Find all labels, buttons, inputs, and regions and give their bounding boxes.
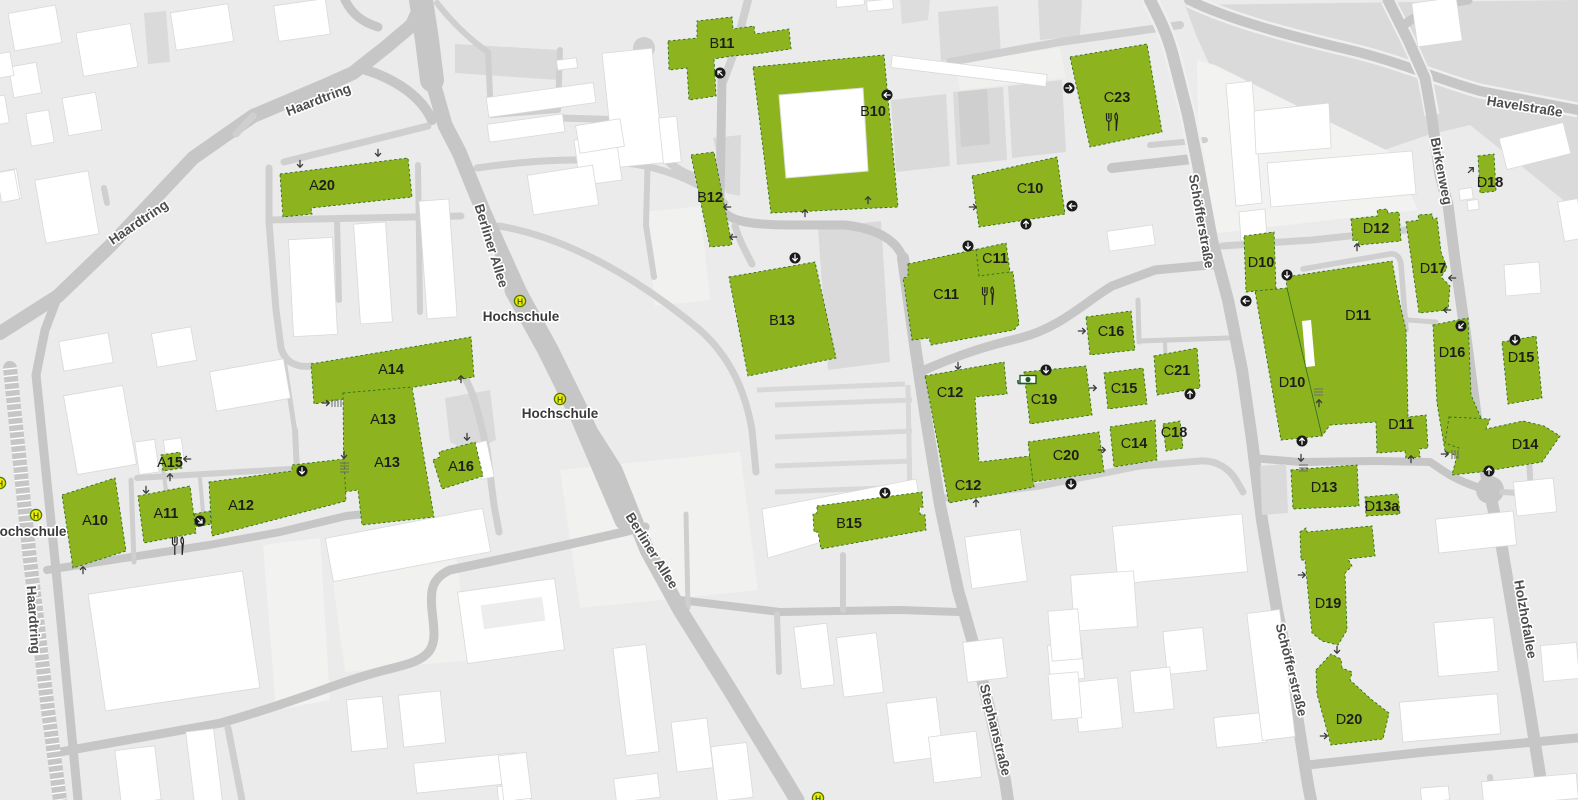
- svg-text:D12: D12: [1363, 221, 1390, 237]
- svg-text:C11: C11: [933, 287, 959, 303]
- svg-text:D17: D17: [1420, 261, 1447, 277]
- svg-text:C20: C20: [1053, 448, 1080, 464]
- svg-text:A11: A11: [153, 506, 178, 522]
- svg-text:A15: A15: [157, 455, 183, 471]
- svg-text:D11: D11: [1345, 308, 1371, 324]
- svg-text:Hochschule: Hochschule: [522, 406, 599, 421]
- svg-text:D20: D20: [1336, 712, 1363, 728]
- svg-text:B13: B13: [769, 313, 795, 329]
- svg-text:C16: C16: [1098, 324, 1125, 340]
- svg-text:Hochschule: Hochschule: [483, 309, 560, 324]
- svg-text:D18: D18: [1477, 175, 1504, 191]
- svg-text:A16: A16: [448, 459, 474, 475]
- svg-text:B10: B10: [860, 104, 886, 120]
- svg-text:D16: D16: [1439, 345, 1466, 361]
- svg-text:D19: D19: [1315, 596, 1342, 612]
- svg-text:D11: D11: [1388, 417, 1414, 433]
- svg-text:C19: C19: [1031, 392, 1058, 408]
- svg-text:C14: C14: [1121, 436, 1148, 452]
- svg-text:C11: C11: [982, 251, 1008, 267]
- svg-text:C12: C12: [937, 385, 964, 401]
- svg-text:C10: C10: [1017, 181, 1044, 197]
- svg-text:D10: D10: [1279, 375, 1306, 391]
- svg-text:C15: C15: [1111, 381, 1138, 397]
- svg-text:A20: A20: [309, 178, 335, 194]
- svg-text:A13: A13: [370, 412, 396, 428]
- svg-text:A12: A12: [228, 498, 254, 514]
- svg-text:C18: C18: [1161, 425, 1188, 441]
- svg-text:D10: D10: [1248, 255, 1275, 271]
- svg-text:D15: D15: [1508, 350, 1535, 366]
- svg-text:B12: B12: [697, 190, 723, 206]
- svg-text:D13a: D13a: [1365, 499, 1401, 515]
- svg-text:A10: A10: [82, 513, 108, 529]
- svg-text:B11: B11: [709, 36, 734, 52]
- svg-text:A14: A14: [378, 362, 404, 378]
- svg-text:C12: C12: [955, 478, 982, 494]
- svg-text:D13: D13: [1311, 480, 1338, 496]
- svg-text:C23: C23: [1104, 90, 1131, 106]
- svg-text:A13: A13: [374, 455, 400, 471]
- svg-text:C21: C21: [1164, 363, 1191, 379]
- svg-text:B15: B15: [836, 516, 862, 532]
- svg-text:D14: D14: [1512, 437, 1539, 453]
